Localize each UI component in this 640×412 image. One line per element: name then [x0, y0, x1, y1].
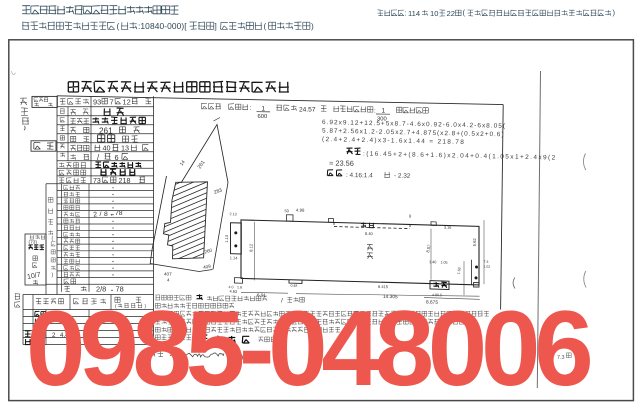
svg-text:40: 40: [103, 144, 111, 153]
svg-text:261: 261: [99, 126, 113, 135]
svg-text:2.13: 2.13: [230, 212, 237, 216]
svg-text:(: (: [463, 8, 466, 17]
svg-text:5.62: 5.62: [472, 237, 477, 246]
svg-text:8.12: 8.12: [249, 243, 254, 252]
svg-text:= 23.56: = 23.56: [329, 159, 354, 168]
svg-text:13: 13: [121, 144, 129, 153]
svg-text:93: 93: [93, 98, 101, 107]
svg-text:1.14: 1.14: [230, 255, 238, 260]
svg-text:6: 6: [115, 153, 119, 162]
svg-text:78: 78: [115, 210, 123, 217]
svg-text:]: ]: [215, 22, 217, 31]
svg-text:3.16: 3.16: [444, 226, 451, 230]
svg-text:(: (: [264, 22, 267, 31]
svg-text:1: 1: [262, 105, 266, 112]
svg-text:1: 1: [382, 108, 386, 115]
svg-text:7: 7: [110, 98, 114, 107]
svg-text:): ): [613, 8, 616, 17]
svg-text:(: (: [117, 22, 120, 31]
svg-text:8: 8: [104, 211, 108, 218]
svg-text:- 2.32: - 2.32: [394, 173, 411, 180]
svg-text:): ): [311, 22, 314, 31]
svg-text:1.05: 1.05: [441, 260, 448, 264]
svg-text:22: 22: [447, 9, 455, 18]
svg-text:407: 407: [164, 272, 172, 277]
svg-text:/: /: [100, 211, 102, 218]
svg-text:114: 114: [408, 9, 420, 18]
svg-text:4.98: 4.98: [296, 208, 305, 213]
svg-text::: :: [250, 105, 252, 112]
svg-text:: 4.16:1.4: : 4.16:1.4: [346, 172, 373, 179]
svg-text:1.02: 1.02: [484, 265, 491, 269]
svg-text:600: 600: [258, 114, 268, 120]
svg-text::: :: [405, 11, 407, 18]
svg-text:0985-048006: 0985-048006: [26, 288, 590, 408]
svg-text:10: 10: [430, 9, 438, 18]
svg-text:1.40: 1.40: [429, 260, 436, 264]
svg-text::10840-000)[: :10840-000)[: [138, 21, 187, 31]
svg-text::: :: [374, 107, 376, 114]
svg-text:1.10: 1.10: [224, 234, 229, 243]
svg-text:73: 73: [93, 178, 101, 185]
svg-text:12: 12: [123, 98, 131, 107]
svg-text:218: 218: [119, 176, 131, 185]
svg-text:24.57: 24.57: [299, 106, 316, 113]
svg-text:8.40: 8.40: [365, 231, 374, 236]
